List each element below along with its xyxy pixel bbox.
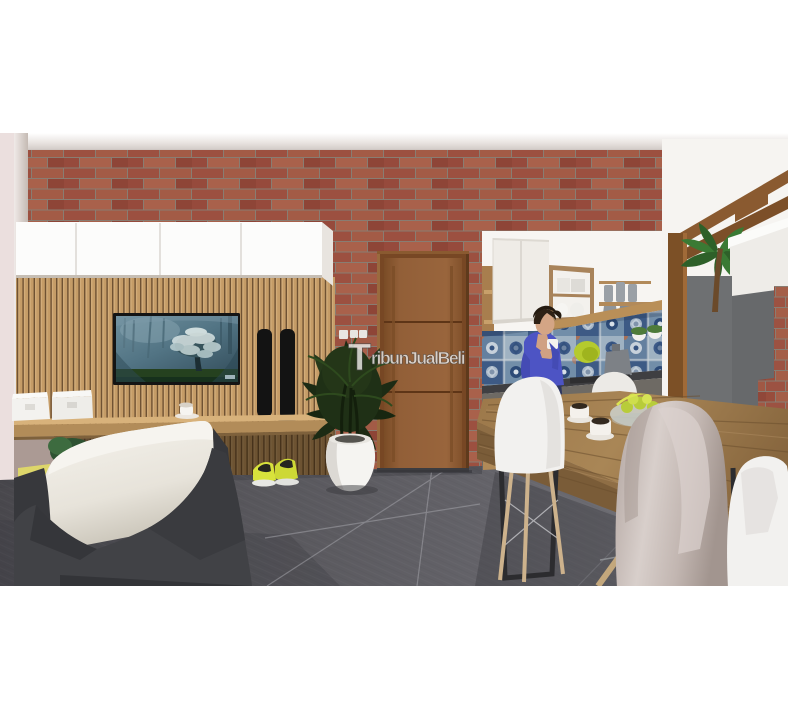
svg-text:T: T xyxy=(348,337,371,379)
svg-text:ribunJualBeli: ribunJualBeli xyxy=(371,348,465,368)
